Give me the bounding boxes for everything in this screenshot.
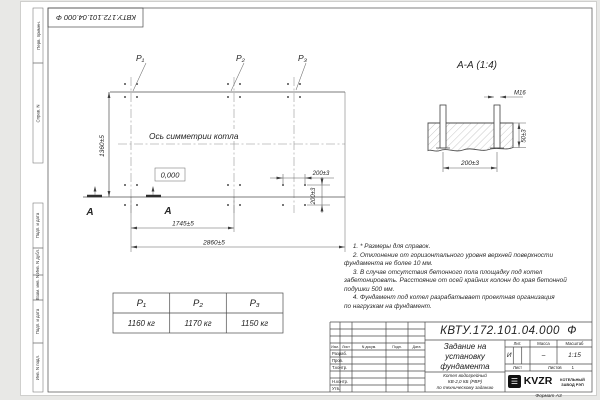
margin-label-inv-dubl: Инв. N дубл.	[33, 248, 43, 275]
designation-text: КВТУ.172.101.04.000 Ф	[426, 322, 591, 340]
col-header-list: Лист	[340, 343, 352, 350]
row-label-prov: Пров.	[330, 357, 352, 364]
axis-label: Ось симметрии котла	[149, 131, 239, 141]
anchor-bolt-left	[440, 105, 446, 148]
load-label-p3: P₃	[298, 53, 308, 63]
col-header-ndokum: N докум.	[352, 343, 386, 350]
section-title: А-А (1:4)	[456, 60, 497, 71]
margin-label-vzam-inv: Взам. инв. N	[33, 275, 43, 300]
lit-header: Лит.	[505, 340, 530, 347]
row-label-nkontr: Н.контр.	[330, 378, 352, 385]
load-table-header-p3: P₃	[226, 293, 283, 313]
kvzr-logo-icon: ☰	[508, 375, 521, 388]
section-cut-marks	[87, 186, 161, 196]
anchor-bolt-right	[494, 105, 500, 148]
anchor-bolt-dots	[124, 83, 306, 206]
load-label-p2: P₂	[236, 53, 246, 63]
load-leader-lines	[133, 63, 306, 91]
margin-label-perv-primen: Перв. примен.	[33, 8, 43, 63]
dim-bolt-x: 200±3	[312, 171, 330, 177]
format-label: Формат А3	[505, 392, 592, 400]
mass-header: Масса	[530, 340, 557, 347]
sheet-label: Лист	[505, 364, 530, 371]
margin-label-podp-data-2: Подп. и дата	[33, 300, 43, 343]
section-letter-right: А	[163, 206, 171, 217]
margin-label-podp-data-1: Подп. и дата	[33, 203, 43, 248]
column-centerlines	[131, 77, 294, 213]
row-label-tkontr: Т.контр.	[330, 364, 352, 371]
load-table-header-p2: P₂	[170, 293, 227, 313]
load-table-header-p1: P₁	[113, 293, 170, 313]
section-letter-left: А	[85, 207, 93, 218]
scale-value: 1:15	[557, 347, 592, 364]
col-header-izm: Изм.	[330, 343, 340, 350]
load-label-p1: P₁	[136, 53, 145, 63]
company-name: КОТЕЛЬНЫЙЗАВОД РЭП	[554, 377, 591, 388]
mass-value: –	[530, 347, 557, 364]
margin-label-inv-podl: Инв. N подл.	[33, 343, 43, 392]
dim-bolt-y: 200±3	[311, 187, 317, 205]
col-header-data: Дата	[408, 343, 425, 350]
scale-header: Масштаб	[557, 340, 592, 347]
dim-1745: 1745±5	[172, 221, 194, 228]
row-label-utv: Утв.	[330, 385, 352, 392]
note-line: по нагрузкам на фундамент.	[344, 303, 594, 312]
dim-depth: 50±3	[522, 129, 528, 143]
load-table-value-p2: 1170 кг	[170, 313, 227, 333]
drawing-sheet-screenshot: P₁ P₂ P₃ Ось симметрии котла 0,000 1360±…	[0, 0, 600, 400]
level-mark: 0,000	[161, 171, 181, 180]
load-table-value-p3: 1150 кг	[226, 313, 283, 333]
company-logo-text: KVZR	[521, 374, 555, 388]
lit-value: И	[505, 347, 513, 364]
row-label-razrab: Разраб.	[330, 350, 352, 357]
section-view: А-А (1:4) М16 50±3 200±3	[428, 60, 528, 172]
dim-1360: 1360±5	[99, 135, 106, 157]
margin-label-sprav-n: Справ. N	[33, 63, 43, 163]
plan-view: P₁ P₂ P₃ Ось симметрии котла 0,000 1360±…	[83, 53, 345, 252]
top-designation-stamp: КВТУ.172.101.04.000 Ф	[48, 8, 143, 27]
load-table-value-p1: 1160 кг	[113, 313, 170, 333]
sheets-count: Листов1	[530, 364, 592, 371]
dim-2860: 2860±5	[202, 240, 225, 247]
thread-label: М16	[514, 91, 526, 97]
dim-width: 200±3	[460, 160, 479, 167]
product-name: Котел водогрейныйКВ-2,0 КБ (РВР)по техни…	[425, 372, 505, 392]
col-header-podp: Подп.	[386, 343, 408, 350]
document-title: Задание наустановкуфундамента	[425, 341, 505, 372]
